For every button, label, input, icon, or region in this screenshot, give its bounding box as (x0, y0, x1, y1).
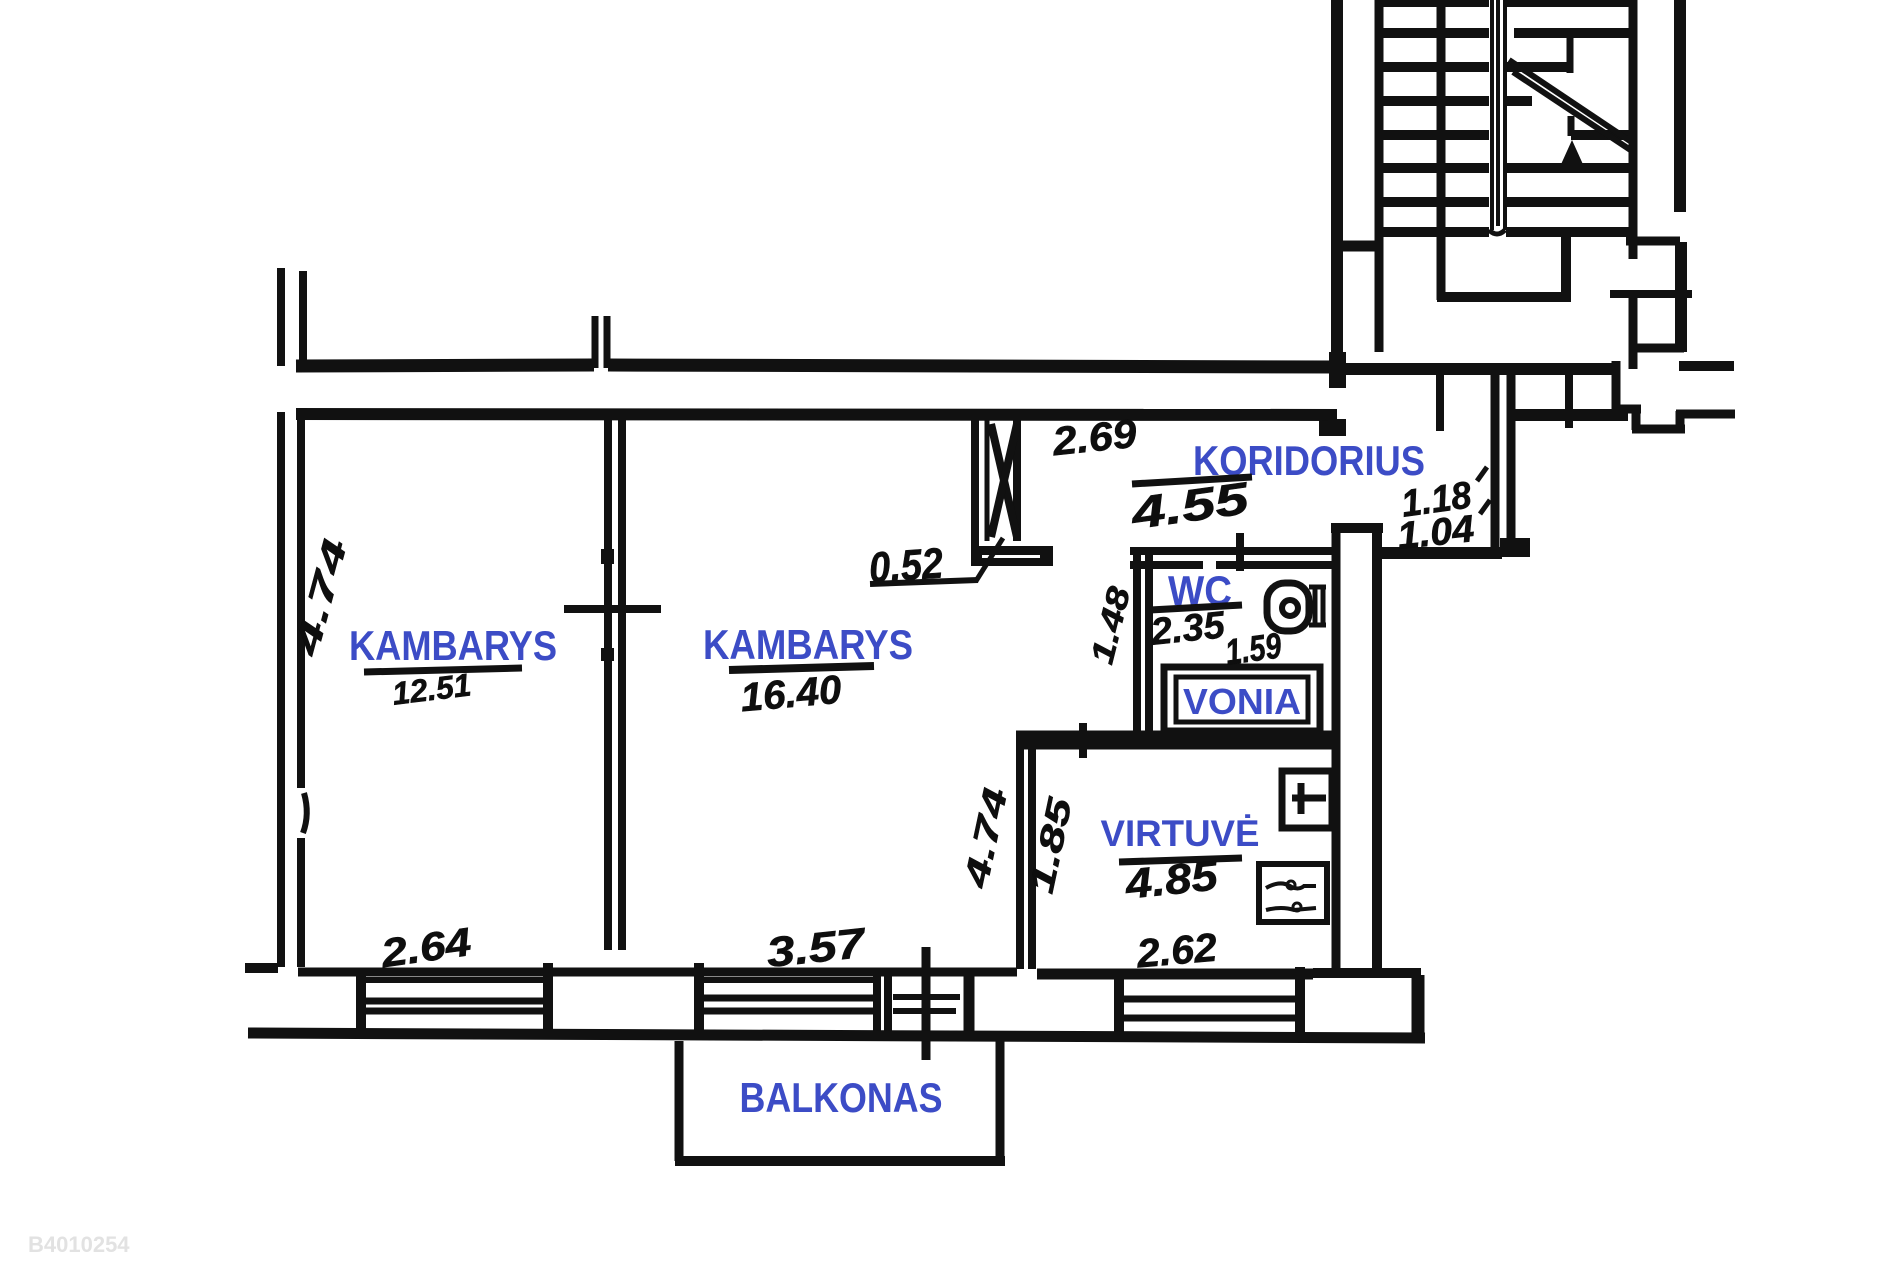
svg-text:VONIA: VONIA (1183, 681, 1301, 722)
svg-text:2.69: 2.69 (1049, 412, 1139, 465)
svg-text:1.59: 1.59 (1223, 624, 1284, 672)
svg-text:2.62: 2.62 (1134, 926, 1219, 977)
svg-text:1.04: 1.04 (1395, 508, 1476, 558)
svg-text:KAMBARYS: KAMBARYS (703, 621, 913, 668)
svg-text:KAMBARYS: KAMBARYS (349, 622, 557, 669)
svg-text:B4010254: B4010254 (28, 1232, 130, 1257)
svg-text:BALKONAS: BALKONAS (740, 1074, 943, 1121)
svg-text:VIRTUVĖ: VIRTUVĖ (1101, 813, 1260, 854)
svg-text:4.85: 4.85 (1122, 851, 1220, 908)
svg-text:2.35: 2.35 (1148, 604, 1228, 654)
svg-text:16.40: 16.40 (739, 668, 843, 721)
